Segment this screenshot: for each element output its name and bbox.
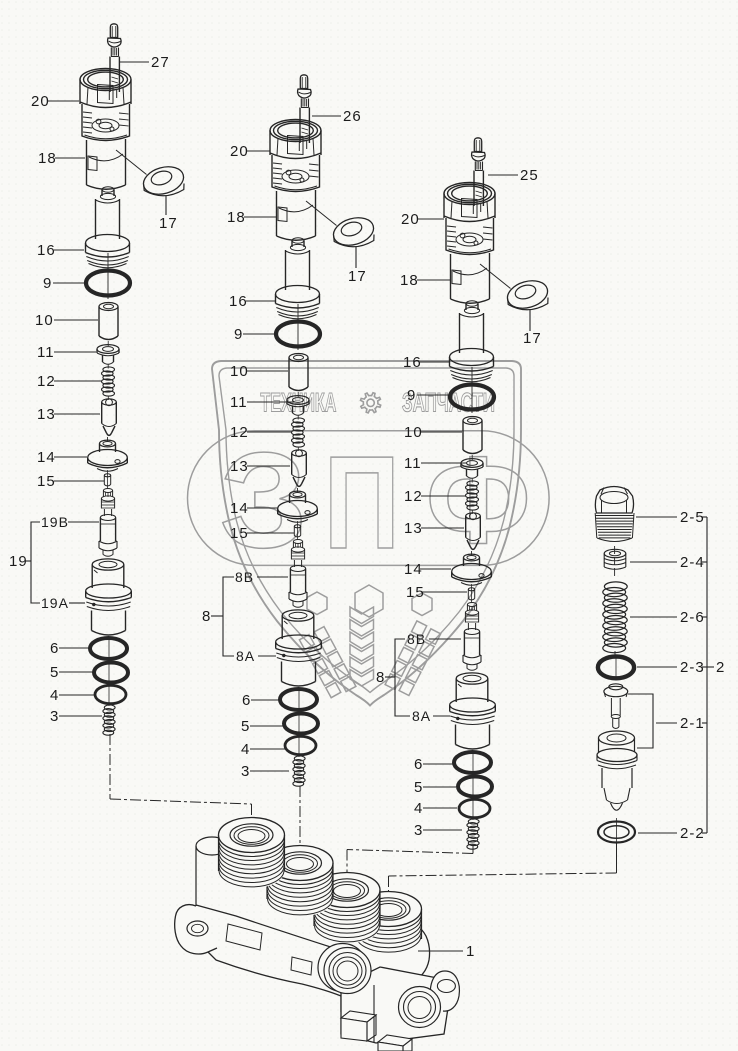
svg-text:8B: 8B [235, 569, 254, 585]
svg-text:2-2: 2-2 [680, 825, 705, 842]
svg-text:2: 2 [716, 659, 725, 676]
svg-text:16: 16 [229, 293, 248, 310]
svg-text:8A: 8A [412, 708, 431, 724]
svg-text:11: 11 [404, 455, 422, 472]
svg-text:16: 16 [403, 354, 422, 371]
svg-text:3: 3 [50, 708, 59, 725]
svg-text:20: 20 [401, 211, 420, 228]
svg-text:14: 14 [37, 449, 56, 466]
svg-text:1: 1 [466, 943, 475, 960]
svg-text:2-5: 2-5 [680, 509, 705, 526]
svg-text:26: 26 [343, 108, 362, 125]
svg-text:8: 8 [202, 608, 211, 625]
svg-text:13: 13 [37, 406, 56, 423]
svg-text:27: 27 [151, 54, 170, 71]
svg-text:17: 17 [159, 215, 178, 232]
svg-text:4: 4 [414, 800, 423, 817]
svg-text:17: 17 [523, 330, 542, 347]
svg-text:14: 14 [404, 561, 423, 578]
svg-text:5: 5 [241, 718, 250, 735]
svg-text:8B: 8B [407, 631, 426, 647]
svg-text:19B: 19B [41, 514, 69, 530]
svg-text:20: 20 [230, 143, 249, 160]
svg-text:12: 12 [230, 424, 249, 441]
svg-text:11: 11 [230, 394, 248, 411]
svg-text:2-6: 2-6 [680, 609, 705, 626]
svg-text:19: 19 [9, 553, 28, 570]
svg-text:18: 18 [227, 209, 246, 226]
svg-text:15: 15 [37, 473, 56, 490]
svg-text:8: 8 [376, 669, 385, 686]
svg-text:6: 6 [242, 692, 251, 709]
svg-text:10: 10 [230, 363, 249, 380]
svg-text:19A: 19A [41, 595, 69, 611]
svg-text:8A: 8A [236, 648, 255, 664]
svg-text:6: 6 [414, 756, 423, 773]
svg-text:3: 3 [241, 763, 250, 780]
svg-text:18: 18 [400, 272, 419, 289]
svg-text:9: 9 [43, 275, 52, 292]
svg-text:П: П [324, 429, 400, 576]
svg-text:10: 10 [404, 424, 423, 441]
svg-text:10: 10 [35, 312, 54, 329]
svg-text:6: 6 [50, 640, 59, 657]
svg-text:12: 12 [37, 373, 56, 390]
svg-text:2-3: 2-3 [680, 659, 705, 676]
svg-text:12: 12 [404, 488, 423, 505]
svg-text:16: 16 [37, 242, 56, 259]
svg-text:5: 5 [50, 664, 59, 681]
svg-text:9: 9 [407, 387, 416, 404]
svg-text:20: 20 [31, 93, 50, 110]
svg-text:14: 14 [230, 500, 249, 517]
svg-text:15: 15 [406, 584, 425, 601]
svg-text:13: 13 [404, 520, 423, 537]
svg-text:18: 18 [38, 150, 57, 167]
svg-text:2-1: 2-1 [680, 715, 705, 732]
svg-text:4: 4 [50, 687, 59, 704]
svg-text:3: 3 [414, 822, 423, 839]
svg-text:4: 4 [241, 741, 250, 758]
svg-text:5: 5 [414, 779, 423, 796]
svg-text:17: 17 [348, 268, 367, 285]
svg-text:13: 13 [230, 458, 249, 475]
svg-text:15: 15 [230, 525, 249, 542]
svg-text:2-4: 2-4 [680, 554, 705, 571]
svg-text:9: 9 [234, 326, 243, 343]
svg-text:11: 11 [37, 344, 55, 361]
svg-text:25: 25 [520, 167, 539, 184]
